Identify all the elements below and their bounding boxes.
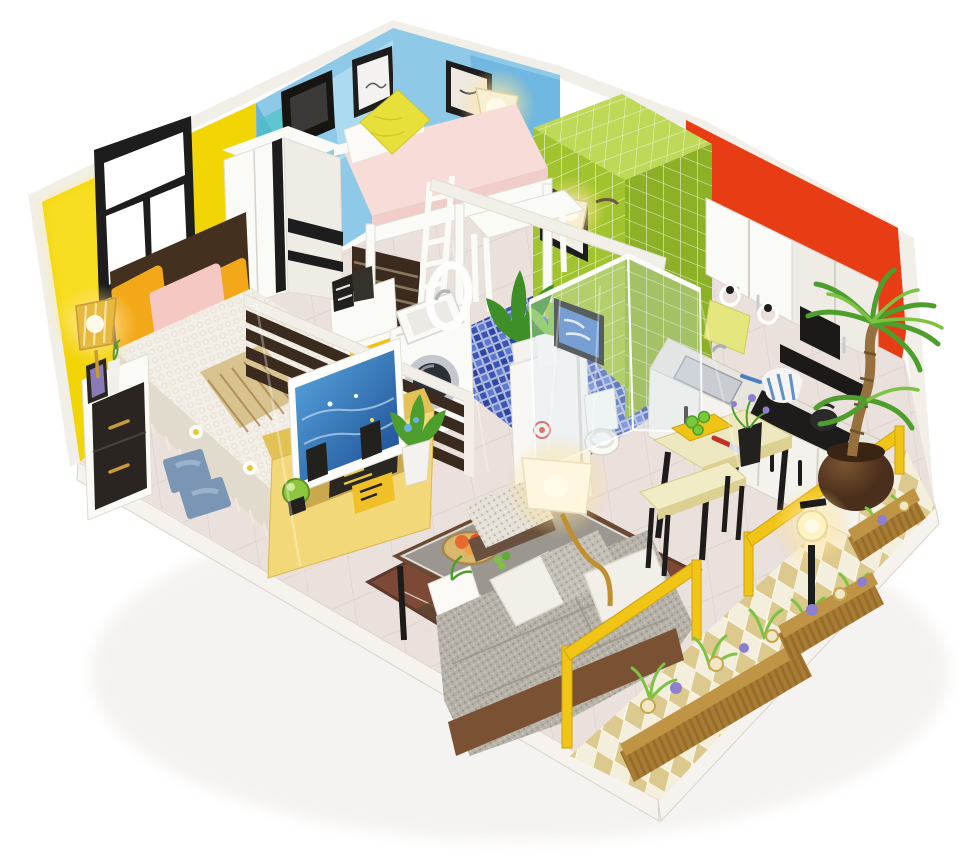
flower-white	[709, 657, 723, 671]
railing-post	[562, 646, 572, 748]
flower-purple	[670, 682, 682, 694]
tv-fish	[370, 418, 374, 422]
plant-berries	[404, 424, 412, 432]
table-leg	[400, 566, 404, 640]
vase	[108, 358, 120, 395]
wardrobe-side	[284, 138, 343, 300]
flower-white	[899, 501, 909, 511]
daisy-center	[193, 429, 199, 435]
flower-white	[834, 588, 846, 600]
tv-fish	[354, 394, 358, 398]
desk-leg	[474, 234, 476, 302]
lamp-stem	[96, 350, 98, 378]
railing-post	[895, 426, 904, 474]
photo-stage: Miniature DIY dollhouse diorama of a one…	[0, 0, 975, 859]
flower-white	[641, 699, 655, 713]
towel-ring-hub	[726, 286, 734, 294]
nightstand-drawers	[92, 382, 147, 510]
grapes	[502, 552, 510, 560]
daisy-center	[247, 465, 253, 471]
flower-purple	[739, 643, 749, 653]
railing-post	[692, 560, 701, 640]
cucumber-slice	[699, 412, 710, 423]
divider-post	[464, 390, 474, 478]
flower-purple	[806, 604, 818, 616]
flower-white	[766, 630, 778, 642]
purple-flower	[763, 407, 770, 414]
towel-ring-hub	[764, 304, 772, 312]
flower-purple	[857, 577, 867, 587]
plant-pot	[402, 440, 430, 486]
black-decor-item	[352, 266, 374, 302]
purple-flower	[748, 394, 756, 402]
grapes	[499, 563, 506, 570]
cucumber-slice	[693, 425, 703, 435]
purple-flower	[731, 401, 737, 407]
plant-berries	[413, 417, 419, 423]
dollhouse-photograph: Miniature DIY dollhouse diorama of a one…	[0, 0, 975, 859]
lamp-globe-core	[805, 519, 819, 533]
desk-leg	[562, 208, 564, 272]
floor-lamp-core	[544, 474, 568, 498]
lamp-core	[86, 315, 104, 333]
tv-fish	[328, 402, 333, 407]
flower-purple	[877, 515, 887, 525]
